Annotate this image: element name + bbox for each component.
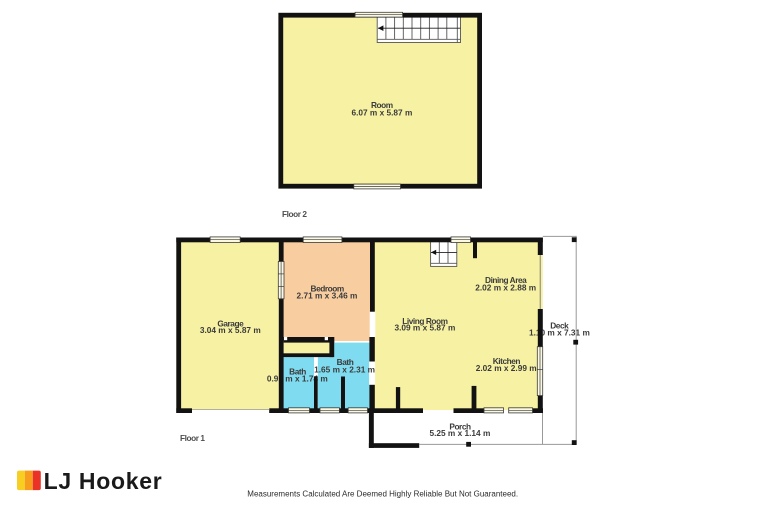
svg-text:6.07 m x 5.87 m: 6.07 m x 5.87 m [351,107,412,117]
svg-text:2.02 m x 2.88 m: 2.02 m x 2.88 m [475,283,536,293]
svg-text:3.04 m x 5.87 m: 3.04 m x 5.87 m [200,325,261,335]
svg-text:Floor 1: Floor 1 [180,433,205,443]
svg-text:0.91 m x 1.74 m: 0.91 m x 1.74 m [267,374,328,384]
svg-text:3.09 m x 5.87 m: 3.09 m x 5.87 m [394,323,455,333]
svg-text:Floor 2: Floor 2 [282,209,307,219]
svg-text:2.02 m x 2.99 m: 2.02 m x 2.99 m [476,363,537,373]
svg-text:Measurements Calculated Are De: Measurements Calculated Are Deemed Highl… [247,489,518,498]
svg-text:2.71 m x 3.46 m: 2.71 m x 3.46 m [297,290,358,300]
svg-text:LJ Hooker: LJ Hooker [44,468,163,494]
svg-text:5.25 m x 1.14 m: 5.25 m x 1.14 m [429,428,490,438]
